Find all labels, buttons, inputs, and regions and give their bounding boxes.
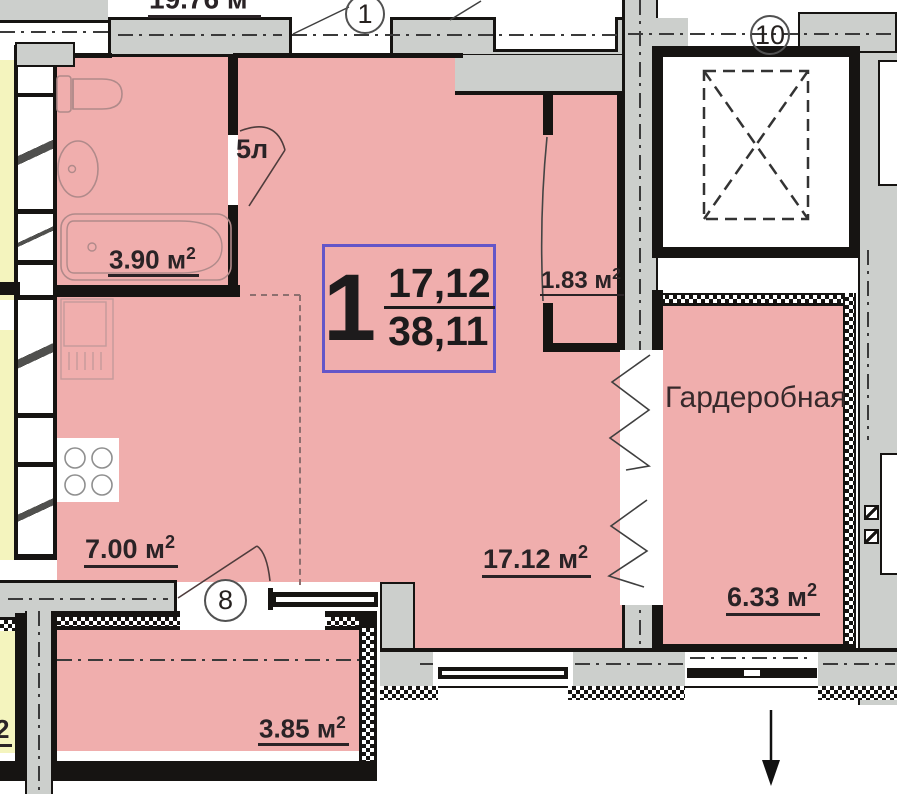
area-label-kitchen: 7.00 м2	[84, 533, 178, 568]
apartment-areas: 17,12 38,11	[384, 262, 495, 354]
area-label-bathroom: 3.90 м2	[108, 245, 199, 277]
area-label-living: 17.12 м2	[482, 543, 591, 578]
apartment-number: 1	[323, 266, 376, 352]
room-label-wardrobe: Гардеробная	[665, 381, 846, 415]
entrance-arrow-icon	[754, 710, 788, 788]
apartment-total-area: 38,11	[384, 309, 495, 354]
apartment-living-area: 17,12	[384, 262, 495, 309]
door-label: 5л	[236, 134, 268, 165]
axis-marker-label: 8	[218, 585, 233, 616]
axis-marker-right: 10	[750, 15, 790, 55]
area-label-balcony: 3.85 м2	[258, 714, 349, 746]
area-label-top-room: 19.76 м2	[148, 0, 261, 18]
area-label-left-fragment: 2	[0, 716, 12, 747]
axis-marker-label: 1	[357, 0, 372, 30]
area-label-wardrobe: 6.33 м2	[726, 581, 820, 616]
area-label-closet: 1.83 м2	[540, 266, 624, 296]
apartment-badge: 1 17,12 38,11	[322, 244, 496, 373]
axis-marker-bottom: 8	[204, 579, 247, 622]
floor-plan: 1 10 8 1 17,12 38,11 19.76 м2 5л 3.90 м2…	[0, 0, 897, 794]
axis-marker-label: 10	[755, 20, 785, 51]
